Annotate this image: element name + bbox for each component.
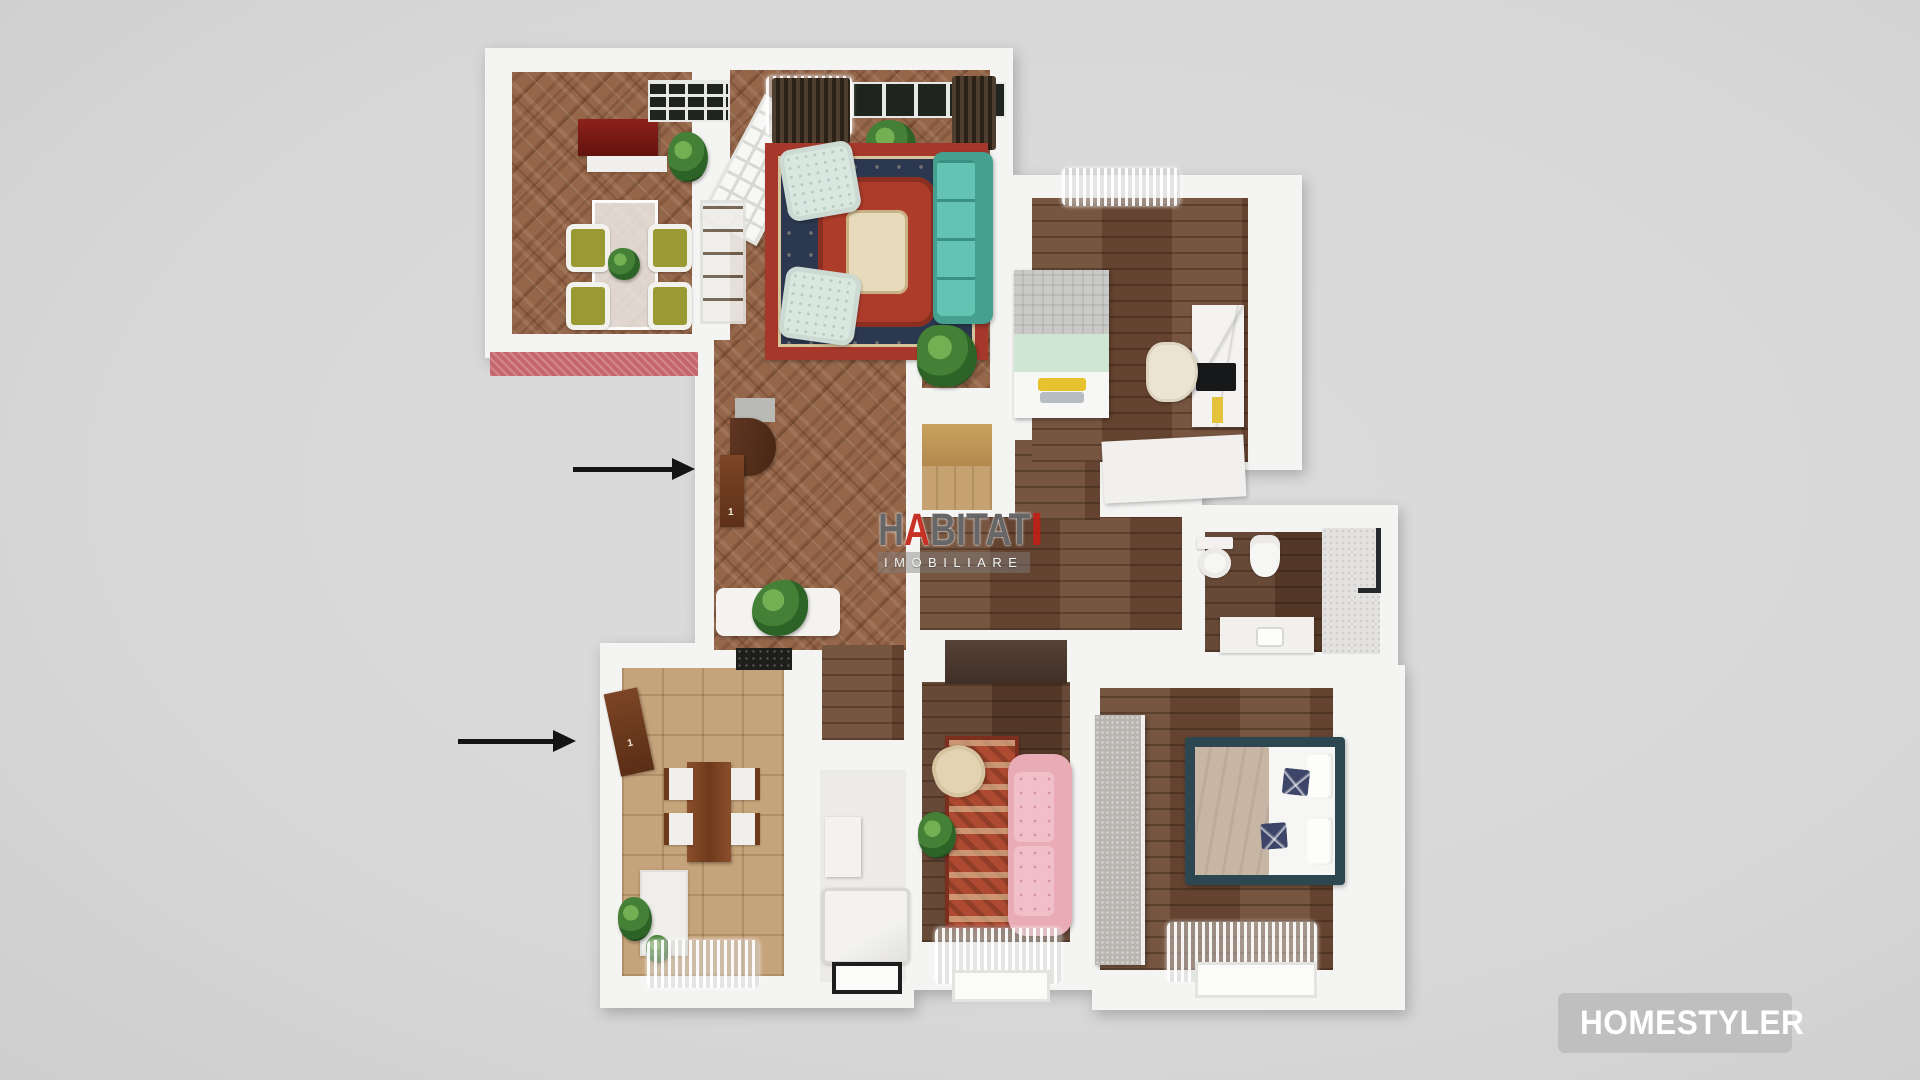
desk-notebook [1212,397,1223,423]
french-door-glass-panel [700,200,746,324]
armchair [777,139,862,223]
bedroom1-office-chair [1146,342,1198,402]
bedroom1-curtain [1062,168,1180,206]
bedroom1-bed [1014,270,1109,418]
bathtub [822,888,910,964]
dining-plant [668,132,708,182]
bedroom2-window-sill [1195,962,1317,998]
main-entrance-door: 1 [720,455,744,527]
living-drape-right [952,76,996,150]
shower-frame [1376,528,1381,592]
bedroom2-wardrobe [1095,715,1145,965]
dining-chair [566,282,610,330]
armchair [777,265,862,347]
kitchen-chair [664,813,693,845]
living-drape-left [772,78,850,144]
kitchen-entrance-door: 1 [604,687,655,776]
main-entrance-door-label: 1 [728,507,734,518]
bed1-towel-gray [1040,392,1084,403]
watermark-subtitle: IMOBILIARE [878,552,1030,573]
bedroom1-wardrobe [1101,434,1246,503]
pink-sofa-cushion [1014,772,1054,842]
kitchen-counter-cooktop [736,648,792,670]
teal-sofa-seats [937,160,975,316]
red-sideboard [578,119,658,156]
teal-sofa [933,152,993,324]
floorplan-scene: 1 1 [0,0,1920,1080]
watermark-part1: H [878,504,904,555]
dining-chair [566,224,610,272]
bed2-blanket [1195,747,1269,875]
kitchen-entrance-door-label: 1 [626,738,634,750]
bed1-towel-yellow [1038,378,1086,391]
dining-chair [648,282,692,330]
bed2-pillow [1307,817,1333,865]
bed2-accent-pillow [1260,822,1288,850]
bed1-quilt [1014,270,1109,334]
shower-frame-bottom [1358,588,1381,593]
homestyler-label: HOMESTYLER [1580,1004,1804,1043]
watermark: HABITAT IMOBILIARE [878,510,1081,573]
bathroom1-vanity [1220,617,1314,653]
living-plant-bottom [917,325,977,387]
bathroom2-window [832,962,902,994]
pinkroom-window-sill [952,970,1050,1002]
dining-skylight-window [648,80,730,122]
kitchen-window-curtain [647,940,759,988]
dining-chair [648,224,692,272]
watermark-accent-letter: A [904,504,930,555]
bed2-accent-pillow [1282,768,1311,797]
watermark-red-bar [1033,513,1040,545]
bed1-mint-blanket [1014,334,1109,372]
vanity-sink [1256,627,1284,647]
toilet-bowl [1199,548,1231,578]
pink-sofa [1008,754,1072,936]
pinkroom-plant [918,812,956,858]
kitchen-plant [618,897,652,941]
kitchen-chair [731,813,760,845]
homestyler-badge: HOMESTYLER [1558,993,1792,1053]
bedroom2-bed [1185,737,1345,885]
arrow-right-icon [458,739,554,744]
kitchen-chair [731,768,760,800]
bidet [1250,535,1280,577]
bedroom1-desk [1192,305,1244,427]
watermark-brand: HABITAT [878,510,1040,550]
console-shelf [587,156,667,172]
arrow-right-icon [573,467,673,472]
laptop [1196,363,1236,391]
bed2-pillow [1307,753,1333,799]
kitchen-table [687,762,731,862]
bathroom2-cabinet [825,817,861,877]
pink-sofa-cushion [1014,846,1054,916]
kitchen-chair [664,768,693,800]
watermark-part2: BITAT [930,504,1031,555]
dining-table-plant [608,248,640,280]
